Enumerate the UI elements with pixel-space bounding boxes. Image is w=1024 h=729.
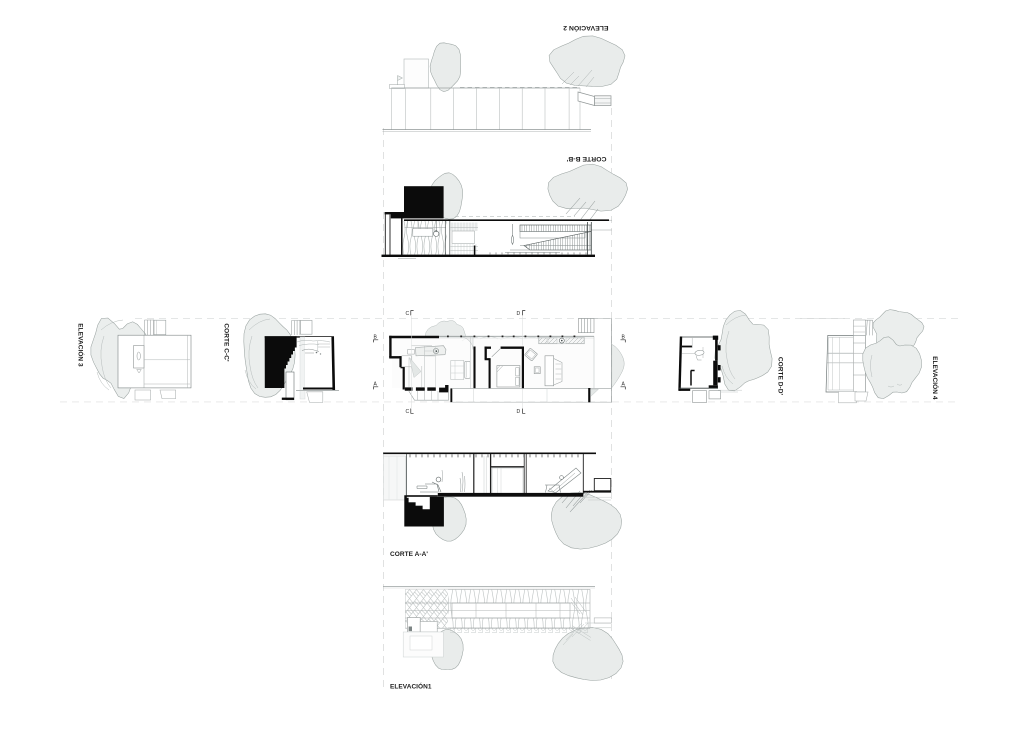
svg-text:ELEVACIÓN 3: ELEVACIÓN 3 [77,323,86,367]
svg-text:ELEVACIÓN 2: ELEVACIÓN 2 [563,24,609,33]
svg-text:D: D [517,409,521,415]
svg-text:CORTE B-B': CORTE B-B' [566,155,606,162]
svg-text:D: D [517,311,521,317]
svg-text:ELEVACIÓN1: ELEVACIÓN1 [390,682,432,691]
svg-text:CORTE C-C': CORTE C-C' [222,323,229,362]
svg-text:ELEVACIÓN 4: ELEVACIÓN 4 [931,356,940,400]
svg-text:C: C [406,409,410,415]
svg-text:C: C [406,311,410,317]
svg-text:CORTE D-D': CORTE D-D' [776,357,783,396]
svg-text:CORTE A-A': CORTE A-A' [390,551,428,558]
